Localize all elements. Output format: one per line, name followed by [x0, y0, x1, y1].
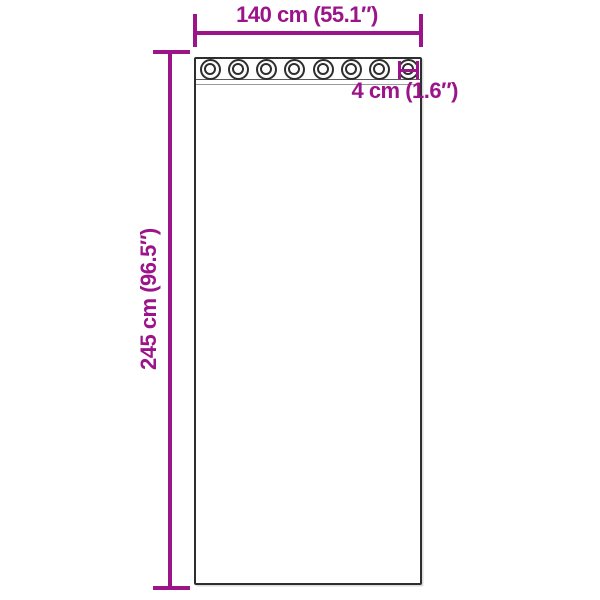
- grommet: [200, 59, 221, 80]
- grommet-inner-ring: [345, 63, 357, 75]
- grommet-inner-ring: [204, 63, 216, 75]
- diagram-canvas: 140 cm (55.1″) 245 cm (96.5″) 4 cm (1.6″…: [0, 0, 600, 600]
- grommet-dimension-label: 4 cm (1.6″): [340, 80, 458, 102]
- width-dimension-line: [195, 31, 423, 35]
- height-dimension-tick-top: [153, 50, 190, 54]
- grommet: [341, 59, 362, 80]
- grommet: [256, 59, 277, 80]
- grommet-dimension-line: [398, 69, 419, 72]
- grommet-inner-ring: [260, 63, 272, 75]
- grommet-inner-ring: [232, 63, 244, 75]
- height-dimension-tick-bottom: [153, 586, 190, 590]
- height-dimension-label: 245 cm (96.5″): [138, 230, 160, 370]
- curtain-panel: [194, 57, 422, 585]
- grommet-inner-ring: [317, 63, 329, 75]
- grommet: [228, 59, 249, 80]
- grommet-inner-ring: [373, 63, 385, 75]
- grommet-inner-ring: [288, 63, 300, 75]
- width-dimension-label: 140 cm (55.1″): [195, 4, 419, 26]
- height-dimension-line: [168, 52, 172, 588]
- grommet: [313, 59, 334, 80]
- width-dimension-tick-right: [419, 14, 423, 47]
